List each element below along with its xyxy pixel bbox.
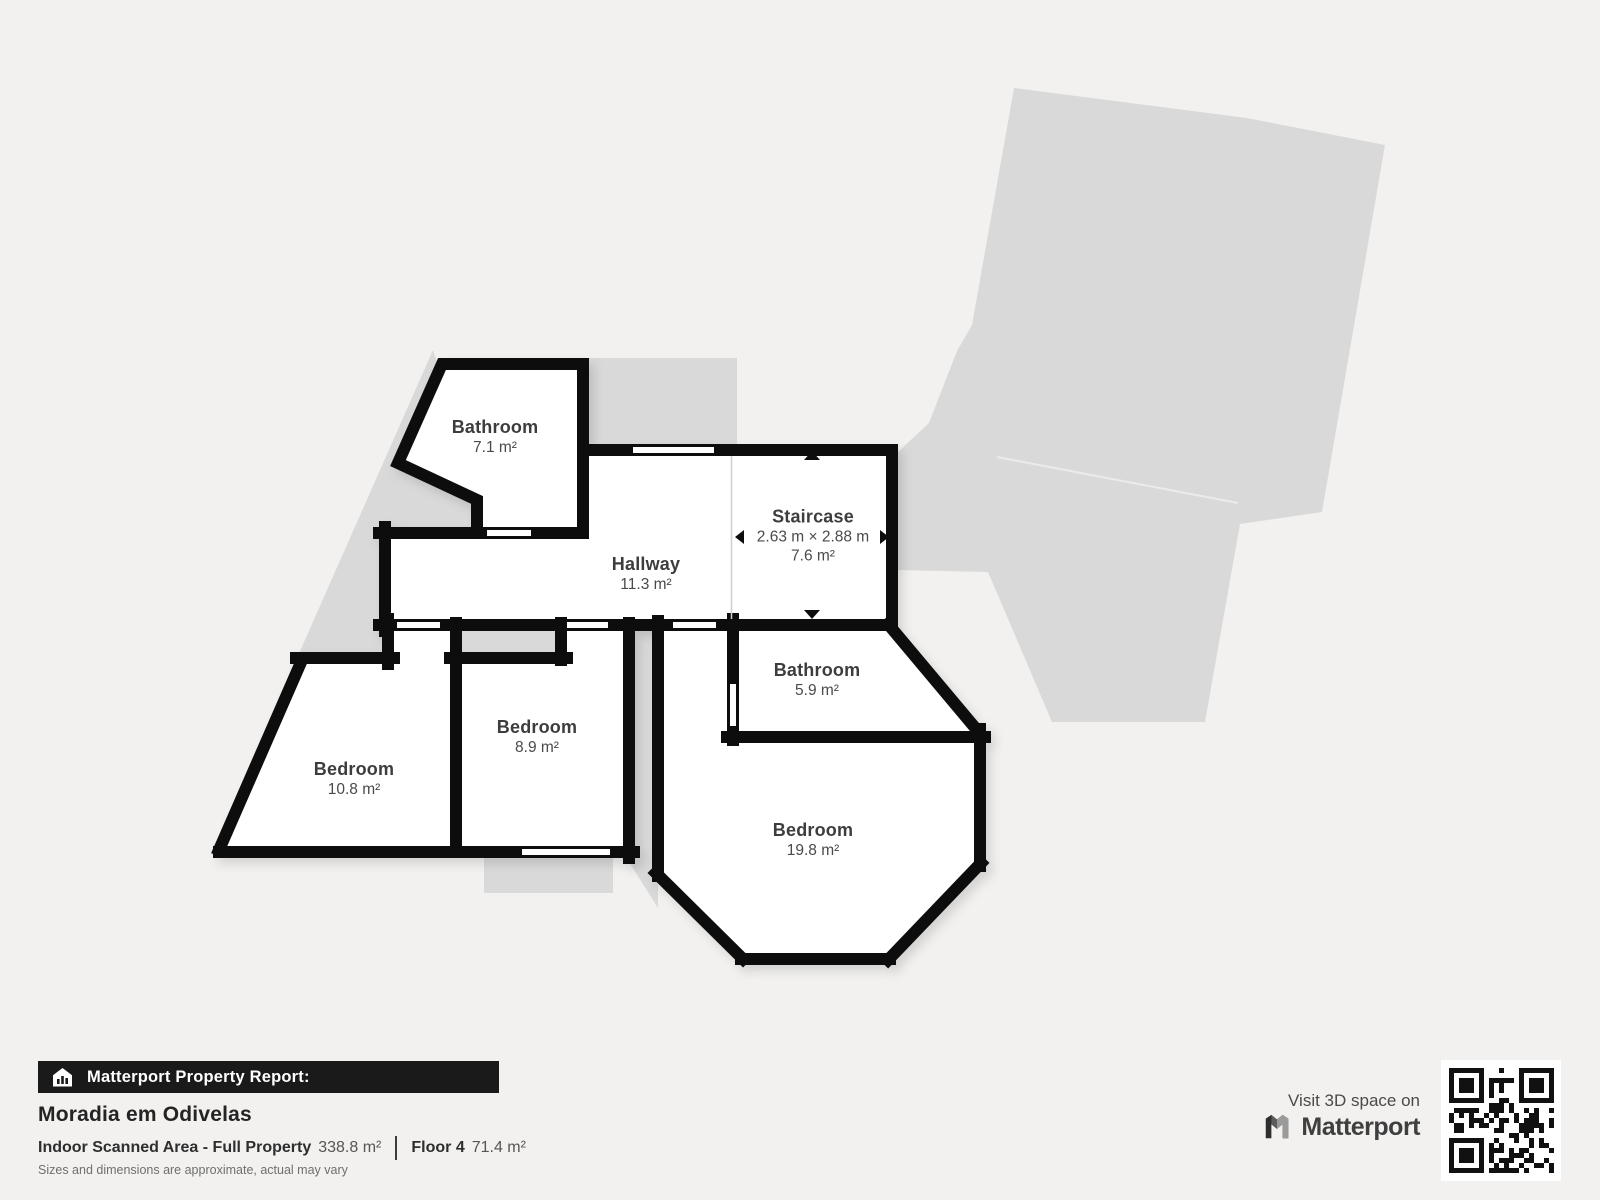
window-opening [522, 849, 610, 855]
scanned-area-value: 338.8 m² [318, 1139, 381, 1157]
matterport-logo: Matterport [1262, 1112, 1420, 1142]
floor-label: Floor 4 [411, 1139, 464, 1157]
door-opening [487, 530, 531, 536]
door-opening [567, 622, 608, 628]
banner-title: Matterport Property Report: [87, 1068, 310, 1087]
house-icon [52, 1067, 73, 1088]
door-opening [673, 622, 716, 628]
visit-3d-text: Visit 3D space on [1288, 1091, 1420, 1111]
window-opening [633, 447, 714, 453]
property-name: Moradia em Odivelas [38, 1103, 252, 1127]
matterport-wordmark: Matterport [1301, 1113, 1420, 1142]
qr-code [1441, 1060, 1561, 1181]
floor-plan [0, 0, 1600, 1200]
disclaimer-text: Sizes and dimensions are approximate, ac… [38, 1163, 348, 1177]
matterport-logo-icon [1262, 1112, 1292, 1142]
door-opening [730, 684, 736, 726]
meta-divider [395, 1136, 397, 1160]
qr-code-pattern [1441, 1060, 1561, 1181]
wall-niche [455, 628, 561, 656]
floor-value: 71.4 m² [472, 1139, 526, 1157]
report-banner: Matterport Property Report: [38, 1061, 499, 1093]
door-opening [397, 622, 440, 628]
scanned-area-line: Indoor Scanned Area - Full Property 338.… [38, 1136, 526, 1160]
room-bathroom-lower [733, 625, 982, 737]
scanned-area-label: Indoor Scanned Area - Full Property [38, 1139, 311, 1157]
